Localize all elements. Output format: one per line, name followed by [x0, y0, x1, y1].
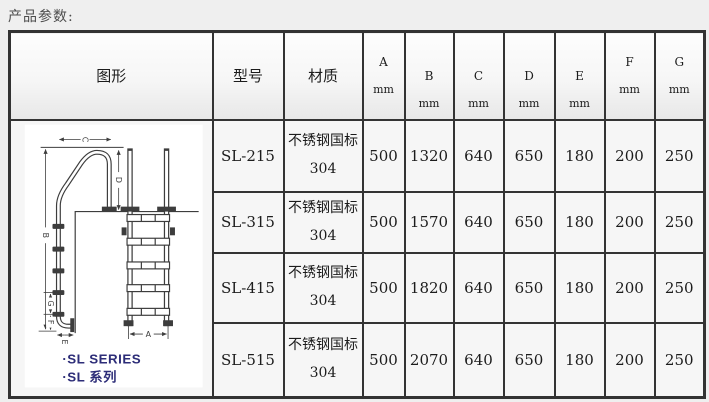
figure-cell: C B D G F E A ·SL SERIES ·SL 系列 — [10, 120, 213, 398]
material-line2: 304 — [285, 229, 362, 244]
material-line1: 不锈钢国标 — [285, 134, 362, 149]
dim-unit: mm — [656, 83, 704, 96]
value-b: 1820 — [405, 253, 454, 324]
dim-label-c: C — [81, 136, 90, 142]
series-caption-en: ·SL SERIES — [62, 351, 141, 366]
material-cell: 不锈钢国标 304 — [284, 323, 363, 397]
value-a: 500 — [363, 120, 405, 193]
model-cell: SL-515 — [213, 323, 284, 397]
dim-unit: mm — [455, 97, 503, 110]
value-a: 500 — [363, 253, 405, 324]
dim-letter: B — [406, 70, 453, 83]
material-line2: 304 — [285, 294, 362, 309]
dim-unit: mm — [364, 83, 404, 96]
value-c: 640 — [454, 120, 504, 193]
value-e: 180 — [555, 192, 605, 253]
dim-letter: A — [364, 56, 404, 69]
header-model: 型号 — [213, 32, 284, 120]
value-f: 200 — [605, 120, 655, 193]
dim-label-a: A — [146, 330, 152, 339]
model-cell: SL-215 — [213, 120, 284, 193]
dim-unit: mm — [606, 83, 654, 96]
dim-label-f: F — [46, 319, 55, 324]
series-caption-cn: ·SL 系列 — [62, 368, 117, 384]
drawing-background — [25, 124, 203, 387]
header-material: 材质 — [284, 32, 363, 120]
dim-label-d: D — [114, 176, 123, 182]
dim-unit: mm — [556, 97, 604, 110]
dim-label-b: B — [41, 232, 50, 237]
dim-letter: E — [556, 70, 604, 83]
value-e: 180 — [555, 323, 605, 397]
dim-letter: C — [455, 70, 503, 83]
header-figure: 图形 — [10, 32, 213, 120]
dim-label-e: E — [60, 339, 69, 344]
header-dim-f: F mm — [605, 32, 655, 120]
dim-letter: F — [606, 56, 654, 69]
value-d: 650 — [504, 120, 555, 193]
value-b: 1320 — [405, 120, 454, 193]
value-a: 500 — [363, 192, 405, 253]
header-row: 图形 型号 材质 A mm B mm C mm D mm E mm F mm G… — [10, 32, 705, 120]
header-dim-g: G mm — [655, 32, 705, 120]
model-cell: SL-315 — [213, 192, 284, 253]
dim-letter: G — [656, 56, 704, 69]
value-b: 1570 — [405, 192, 454, 253]
dim-letter: D — [505, 70, 554, 83]
value-g: 250 — [655, 192, 705, 253]
material-line1: 不锈钢国标 — [285, 338, 362, 353]
value-d: 650 — [504, 323, 555, 397]
material-line2: 304 — [285, 366, 362, 381]
page-title: 产品参数: — [8, 6, 74, 26]
dim-unit: mm — [406, 97, 453, 110]
value-c: 640 — [454, 323, 504, 397]
value-c: 640 — [454, 192, 504, 253]
header-dim-d: D mm — [504, 32, 555, 120]
value-g: 250 — [655, 120, 705, 193]
product-params-table: 图形 型号 材质 A mm B mm C mm D mm E mm F mm G… — [8, 30, 706, 399]
value-a: 500 — [363, 323, 405, 397]
header-dim-e: E mm — [555, 32, 605, 120]
dim-unit: mm — [505, 97, 554, 110]
dim-label-g: G — [46, 300, 55, 306]
value-f: 200 — [605, 192, 655, 253]
table-row-sl-215: C B D G F E A ·SL SERIES ·SL 系列 SL-215 不… — [10, 120, 705, 193]
header-dim-a: A mm — [363, 32, 405, 120]
ladder-diagram: C B D G F E A ·SL SERIES ·SL 系列 — [11, 121, 212, 396]
value-b: 2070 — [405, 323, 454, 397]
value-g: 250 — [655, 253, 705, 324]
value-e: 180 — [555, 120, 605, 193]
value-f: 200 — [605, 323, 655, 397]
value-d: 650 — [504, 192, 555, 253]
material-cell: 不锈钢国标 304 — [284, 253, 363, 324]
material-line2: 304 — [285, 162, 362, 177]
value-c: 640 — [454, 253, 504, 324]
value-g: 250 — [655, 323, 705, 397]
value-d: 650 — [504, 253, 555, 324]
model-cell: SL-415 — [213, 253, 284, 324]
material-cell: 不锈钢国标 304 — [284, 192, 363, 253]
value-f: 200 — [605, 253, 655, 324]
material-cell: 不锈钢国标 304 — [284, 120, 363, 193]
material-line1: 不锈钢国标 — [285, 201, 362, 216]
value-e: 180 — [555, 253, 605, 324]
header-dim-c: C mm — [454, 32, 504, 120]
header-dim-b: B mm — [405, 32, 454, 120]
material-line1: 不锈钢国标 — [285, 266, 362, 281]
